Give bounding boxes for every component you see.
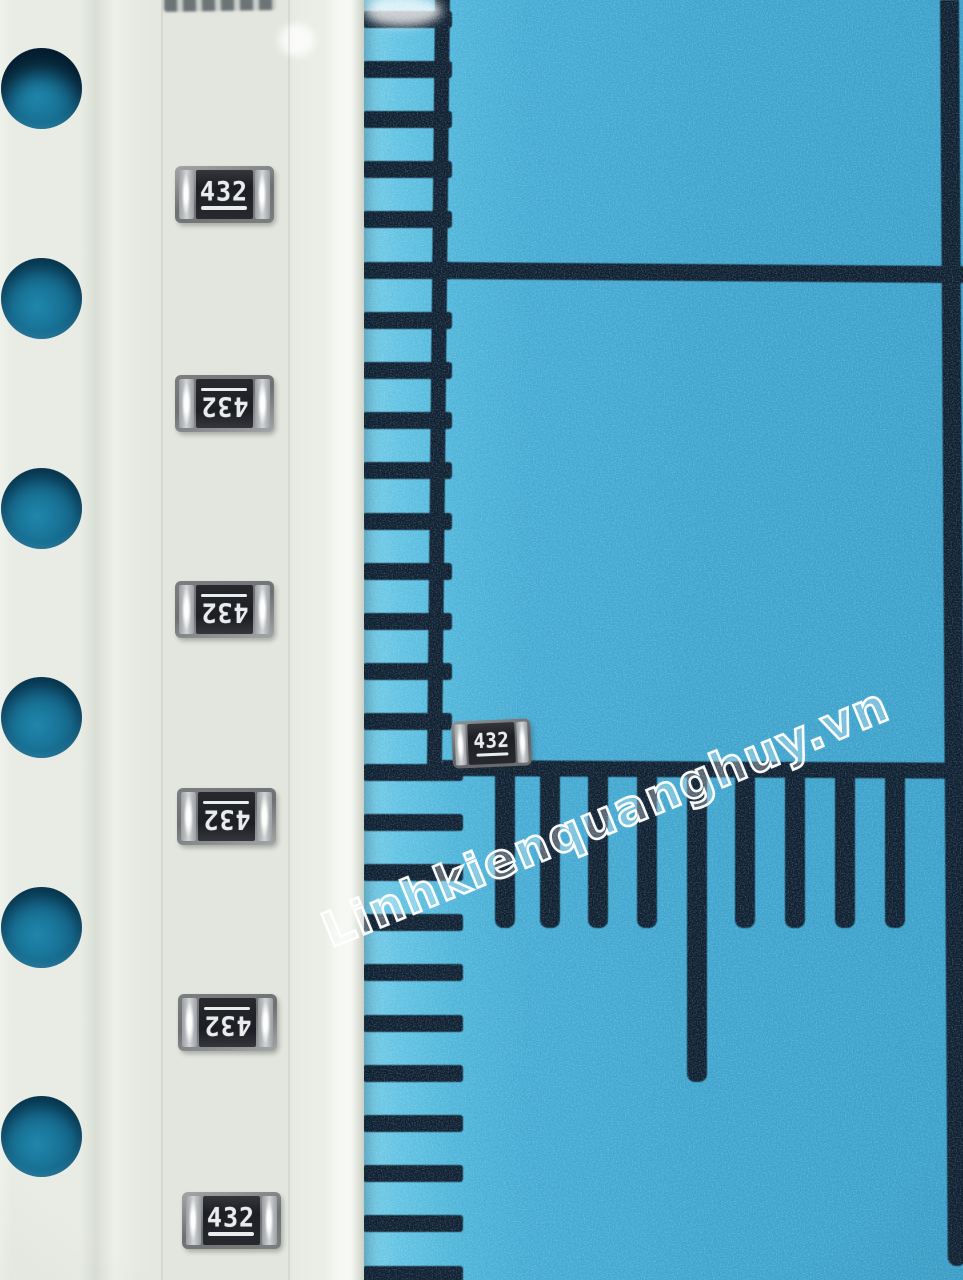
smd-resistor-chip: 432 [177, 788, 276, 845]
ruler-tick [363, 1115, 463, 1132]
ruler-long-tick [687, 770, 707, 1082]
resistor-marking: 432 [200, 178, 248, 205]
resistor-marking: 432 [473, 730, 510, 752]
mat-grid-horizontal-line [441, 262, 963, 283]
resistor-face: 432 [451, 718, 532, 768]
ruler-tick [785, 770, 805, 928]
resistor-body: 432 [467, 722, 516, 765]
resistor-terminal-right [262, 1196, 277, 1245]
resistor-marking: 432 [202, 806, 250, 833]
ruler-tick [363, 964, 463, 981]
resistor-face: 432 [182, 1192, 281, 1249]
resistor-terminal-left [454, 724, 467, 765]
resistor-terminal-left [257, 792, 272, 841]
smd-resistor-chip: 432 [175, 166, 274, 223]
sprocket-hole [1, 1096, 82, 1177]
sprocket-hole [1, 48, 82, 129]
resistor-terminal-left [255, 379, 270, 428]
resistor-body: 432 [196, 170, 253, 219]
ruler-tick [363, 1065, 463, 1082]
resistor-terminal-right [181, 792, 196, 841]
resistor-body: 432 [196, 585, 253, 634]
loose-resistor: 432 [451, 718, 532, 768]
resistor-face: 432 [175, 581, 274, 638]
sprocket-hole [1, 887, 82, 968]
resistor-terminal-right [179, 379, 194, 428]
photo-smd-resistor-tape-on-mat: 432432432432432432 432 Linhkienquanghuy.… [0, 0, 963, 1280]
resistor-face: 432 [175, 375, 274, 432]
resistor-face: 432 [177, 788, 276, 845]
resistor-terminal-right [516, 721, 529, 762]
ruler-tick [885, 770, 905, 928]
resistor-body: 432 [198, 792, 255, 841]
smd-resistor-chip: 432 [175, 375, 274, 432]
ruler-tick [363, 814, 463, 831]
resistor-terminal-right [255, 170, 270, 219]
ruler-tick [835, 770, 855, 928]
resistor-body: 432 [199, 998, 256, 1047]
smd-resistor-chip: 432 [175, 581, 274, 638]
resistor-face: 432 [178, 994, 277, 1051]
ruler-tick [363, 1266, 463, 1280]
resistor-terminal-left [179, 170, 194, 219]
smd-resistor-chip: 432 [178, 994, 277, 1051]
smd-resistor-chip: 432 [182, 1192, 281, 1249]
carrier-tape: 432432432432432432 [0, 0, 364, 1280]
resistor-body: 432 [196, 379, 253, 428]
sprocket-hole [1, 468, 82, 549]
ruler-tick [363, 1215, 463, 1232]
tape-print-smudge [164, 0, 276, 12]
ruler-tick [363, 1015, 463, 1032]
resistor-terminal-left [255, 585, 270, 634]
resistor-body: 432 [203, 1196, 260, 1245]
sprocket-hole [1, 677, 82, 758]
resistor-terminal-right [179, 585, 194, 634]
resistor-terminal-right [182, 998, 197, 1047]
sprocket-hole [1, 258, 82, 339]
resistor-marking: 432 [200, 393, 248, 420]
tape-glare-spot [279, 24, 315, 56]
ruler-tick [363, 1165, 463, 1182]
resistor-terminal-left [186, 1196, 201, 1245]
mat-grid-vertical-line [940, 0, 963, 1266]
resistor-face: 432 [175, 166, 274, 223]
resistor-marking: 432 [203, 1012, 251, 1039]
resistor-terminal-left [258, 998, 273, 1047]
resistor-marking: 432 [207, 1204, 255, 1231]
smd-resistor-chip: 432 [451, 718, 532, 768]
resistor-marking: 432 [200, 599, 248, 626]
